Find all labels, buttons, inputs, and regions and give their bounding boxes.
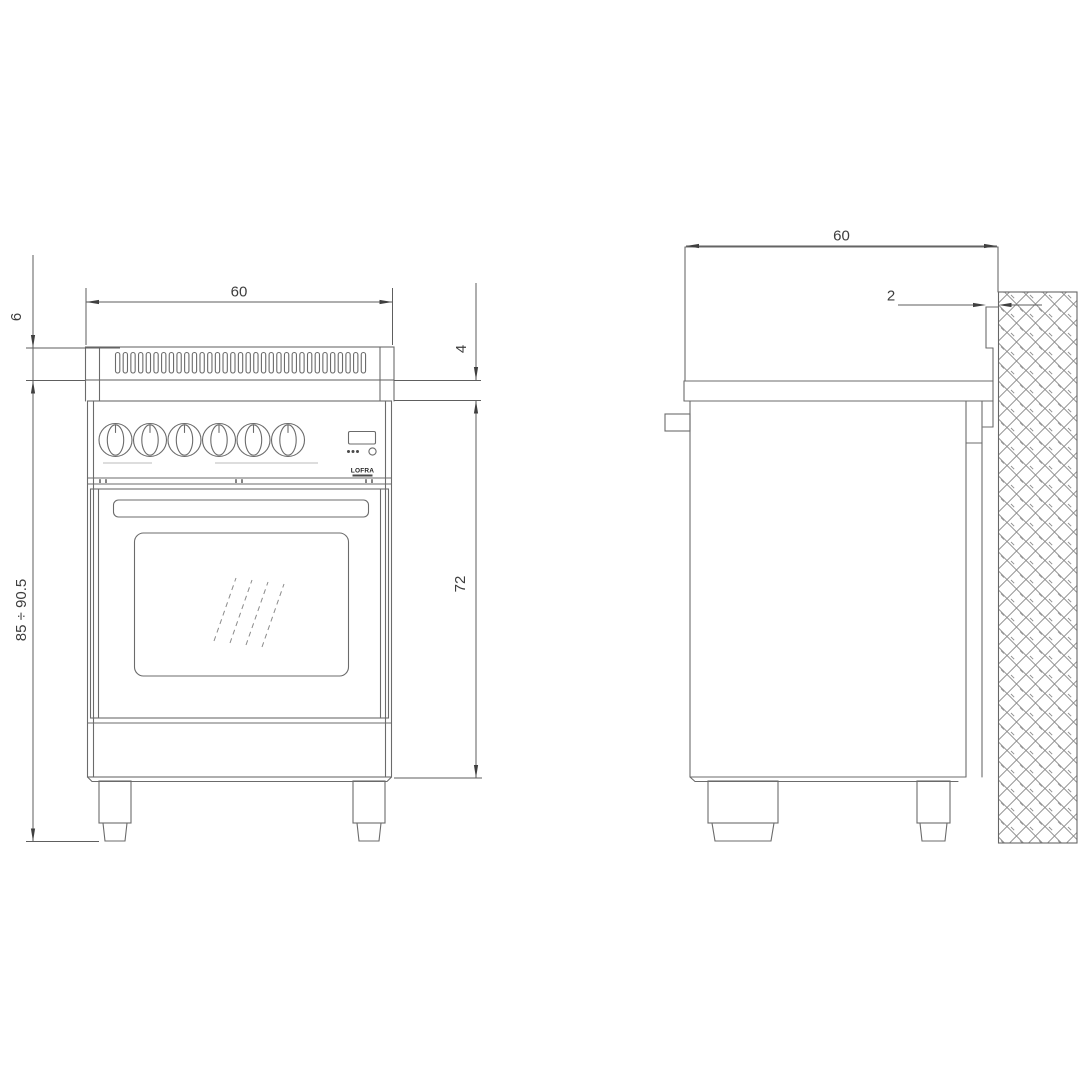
- side-rear-foot: [917, 781, 950, 841]
- dim-right-column-line: [474, 367, 478, 380]
- panel-trim-marks: [100, 479, 372, 483]
- door-glass-reflections: [214, 578, 284, 647]
- dim-left-column-line: [31, 381, 35, 394]
- front-feet: [99, 781, 385, 841]
- burner-knob: [99, 424, 132, 457]
- wall: [999, 292, 1078, 843]
- side-rear-foot-line: [920, 823, 947, 841]
- timer-display: [349, 432, 376, 445]
- side-rear-foot-line: [917, 781, 950, 823]
- burner-knob: [203, 424, 236, 457]
- brand-logo: LOFRA: [351, 468, 374, 477]
- front-left-foot-line: [99, 781, 131, 823]
- front-view: LOFRA: [86, 347, 395, 841]
- indicator-lights-line: [347, 450, 350, 453]
- dim-front-width-line: [86, 300, 99, 304]
- dim-side-depth-label: 60: [833, 228, 850, 245]
- burner-knob: [272, 424, 305, 457]
- dim-body-height-label: 72: [452, 576, 469, 593]
- cooker-body: [88, 401, 392, 782]
- side-knob-profile: [665, 414, 690, 431]
- side-front-foot: [708, 781, 778, 841]
- door-glass-reflection: [214, 578, 236, 641]
- brand-logo-text: LOFRA: [351, 468, 374, 475]
- indicator-lights-line: [352, 450, 355, 453]
- dim-backsplash-height-label: 6: [8, 313, 25, 321]
- dim-left-column-line: [31, 829, 35, 842]
- dim-left-column: 6 85 ÷ 90.5: [8, 255, 120, 842]
- door-glass-reflection: [246, 582, 268, 645]
- indicator-lights: [347, 450, 359, 453]
- front-right-foot-line: [353, 781, 385, 823]
- cooker-body-line: [88, 777, 392, 782]
- door-glass-reflection: [262, 584, 284, 647]
- backsplash-line: [86, 347, 395, 380]
- dim-right-column-line: [474, 401, 478, 414]
- dim-front-width: 60: [86, 284, 393, 346]
- side-front-foot-line: [712, 823, 774, 841]
- dim-right-column: 4 72: [394, 283, 482, 778]
- side-top-section: [685, 247, 998, 381]
- burner-knob: [134, 424, 167, 457]
- dim-left-column-line: [31, 335, 35, 348]
- door-glass-reflection: [230, 580, 252, 643]
- burner-knob: [168, 424, 201, 457]
- dim-wall-clearance-line: [973, 303, 986, 307]
- door-handle: [114, 500, 369, 517]
- door-window: [135, 533, 349, 676]
- dim-side-depth: 60: [686, 228, 997, 249]
- dim-overall-height-label: 85 ÷ 90.5: [13, 579, 30, 641]
- indicator-lights-line: [356, 450, 359, 453]
- dimensions: 60 6 85 ÷ 90.5 4 72: [8, 228, 1042, 842]
- side-body: [665, 401, 993, 782]
- oven-door: [88, 489, 392, 723]
- dim-right-column-line: [474, 765, 478, 778]
- front-left-foot: [99, 781, 131, 841]
- dim-top-trim-label: 4: [453, 345, 470, 353]
- control-panel: LOFRA: [88, 424, 392, 485]
- brand-logo-underline: [353, 475, 373, 477]
- cooker-body-line: [88, 401, 392, 777]
- dim-front-width-label: 60: [231, 284, 248, 301]
- side-view: [665, 247, 1077, 843]
- cooker-installation-drawing: LOFRA: [0, 0, 1080, 1080]
- front-right-foot: [353, 781, 385, 841]
- burner-knob: [237, 424, 270, 457]
- side-front-foot-line: [708, 781, 778, 823]
- front-right-foot-line: [357, 823, 381, 841]
- knobs: [99, 424, 305, 457]
- backsplash: [86, 347, 395, 401]
- front-left-foot-line: [103, 823, 127, 841]
- side-worktop-band: [684, 381, 993, 401]
- oven-door-line: [91, 489, 389, 718]
- dim-front-width-line: [380, 300, 393, 304]
- power-indicator: [369, 448, 376, 455]
- wall-section: [999, 292, 1078, 843]
- dim-wall-clearance-label: 2: [887, 288, 895, 305]
- technical-drawing: LOFRA: [0, 0, 1080, 1080]
- side-feet: [708, 781, 950, 841]
